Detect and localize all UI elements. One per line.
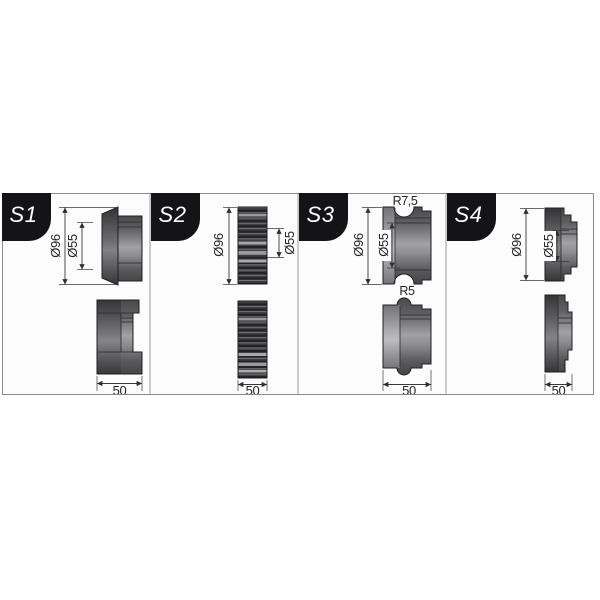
panel-label-s3: S3	[307, 202, 335, 228]
s1-width-label: 50	[113, 383, 127, 394]
s3-groove-radius-label: R7,5	[393, 194, 418, 208]
s4-bore-diameter-label: Ø55	[541, 234, 556, 258]
s3-bore-diameter-label: Ø55	[376, 233, 391, 257]
s3-bottom-roller-profile	[383, 298, 431, 375]
panel-label-s2: S2	[159, 202, 187, 228]
panel-label-s1: S1	[10, 202, 38, 228]
s1-bore-diameter-label: Ø55	[65, 234, 80, 258]
s2-width-label: 50	[246, 383, 260, 394]
s4-bottom-roller-profile	[545, 295, 572, 372]
s3-outer-diameter-label: Ø96	[351, 233, 366, 257]
s3-bead-radius-label: R5	[399, 284, 415, 298]
s1-outer-diameter-label: Ø96	[48, 234, 63, 258]
panel-s2-drawing: Ø96 Ø55 50	[211, 207, 297, 394]
panel-badge-s1: S1	[2, 193, 51, 241]
s4-width-label: 50	[552, 383, 566, 394]
s2-outer-diameter-label: Ø96	[211, 233, 226, 257]
panel-badge-s2: S2	[151, 193, 200, 241]
panel-s4-drawing: Ø96 Ø55 50	[509, 208, 577, 394]
panel-badge-s3: S3	[299, 193, 348, 241]
profiles-strip: S1 S2 S3 S4	[2, 193, 594, 395]
technical-drawing: Ø96 Ø55 50	[3, 194, 593, 394]
s3-width-label: 50	[402, 383, 416, 394]
s1-top-roller-profile	[102, 207, 142, 285]
s2-top-roller-profile	[238, 207, 267, 284]
s1-bottom-roller-profile	[97, 300, 142, 374]
panel-label-s4: S4	[455, 202, 483, 228]
panel-s3-drawing: R7,5 R5 Ø96 Ø55 50	[351, 194, 431, 394]
tooling-diagram: S1 S2 S3 S4	[0, 0, 600, 600]
panel-badge-s4: S4	[447, 193, 496, 241]
s2-bottom-roller-profile	[238, 301, 267, 378]
s2-bore-diameter-label: Ø55	[282, 231, 297, 255]
panel-s1-drawing: Ø96 Ø55 50	[48, 207, 142, 394]
s4-outer-diameter-label: Ø96	[509, 233, 524, 257]
